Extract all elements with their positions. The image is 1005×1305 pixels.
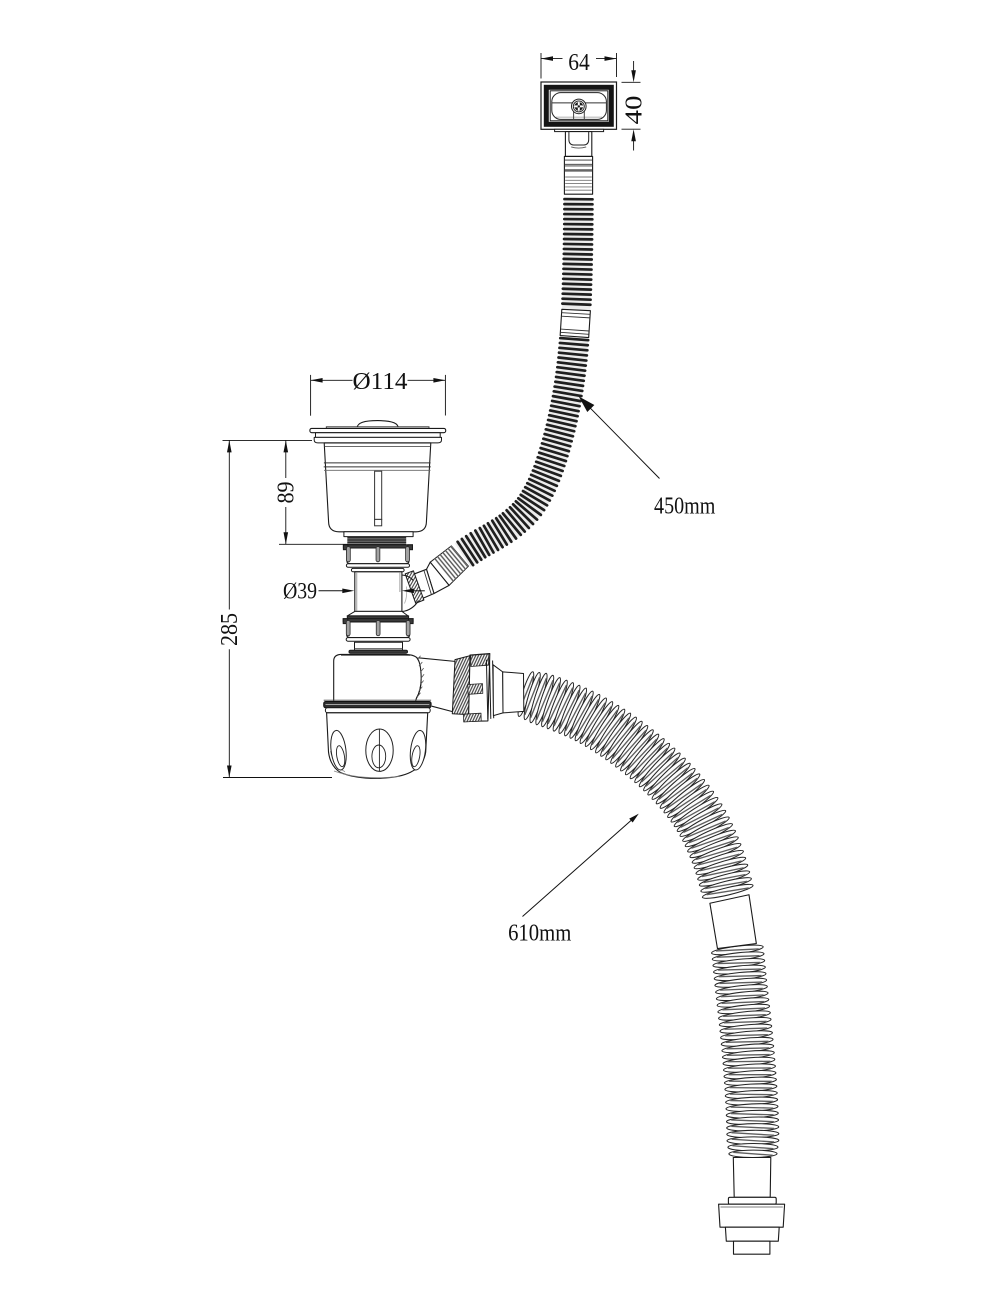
- svg-text:89: 89: [274, 481, 300, 503]
- svg-text:Ø114: Ø114: [353, 369, 408, 395]
- svg-text:Ø39: Ø39: [283, 579, 317, 604]
- svg-text:450mm: 450mm: [654, 494, 716, 520]
- svg-text:610mm: 610mm: [508, 921, 571, 947]
- svg-text:285: 285: [217, 613, 243, 646]
- svg-text:64: 64: [568, 50, 590, 76]
- svg-text:40: 40: [622, 96, 648, 125]
